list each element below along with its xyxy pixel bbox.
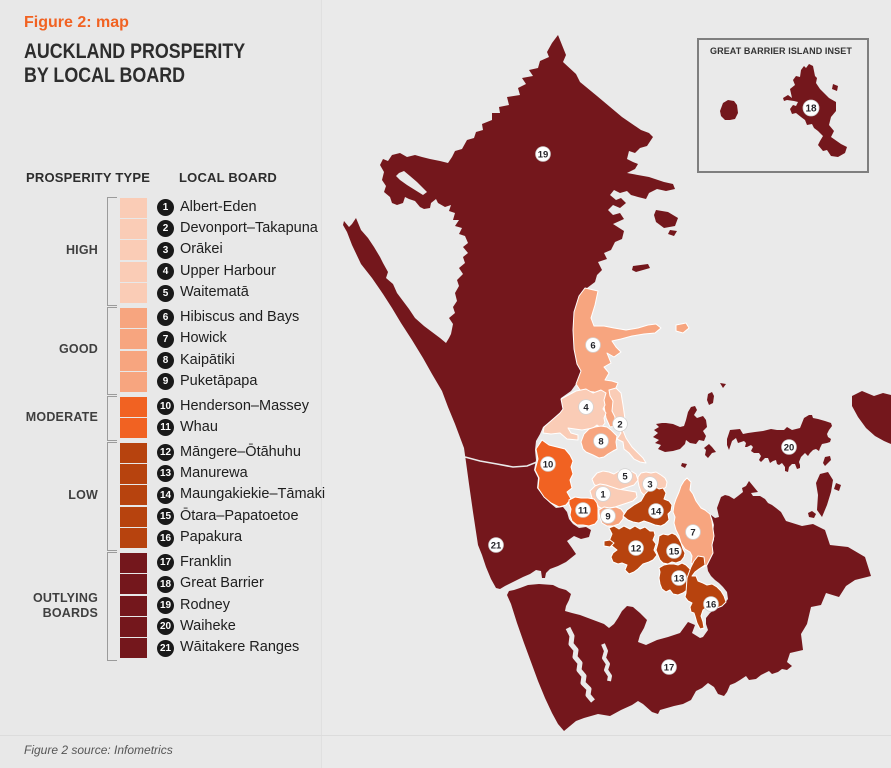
svg-text:20: 20 [784, 442, 795, 453]
svg-text:14: 14 [651, 506, 662, 517]
svg-text:1: 1 [600, 489, 606, 500]
svg-text:17: 17 [664, 662, 675, 673]
svg-text:9: 9 [605, 511, 610, 522]
svg-text:6: 6 [590, 340, 595, 351]
svg-text:21: 21 [491, 540, 502, 551]
svg-text:11: 11 [578, 505, 589, 516]
svg-text:10: 10 [543, 459, 554, 470]
svg-text:8: 8 [598, 436, 603, 447]
svg-text:19: 19 [538, 149, 549, 160]
svg-text:5: 5 [622, 471, 628, 482]
svg-text:12: 12 [631, 543, 642, 554]
svg-text:16: 16 [706, 599, 717, 610]
svg-text:15: 15 [669, 546, 680, 557]
svg-text:4: 4 [583, 402, 589, 413]
svg-text:13: 13 [674, 573, 685, 584]
svg-text:7: 7 [690, 527, 695, 538]
svg-text:3: 3 [647, 479, 652, 490]
svg-text:2: 2 [617, 419, 622, 430]
